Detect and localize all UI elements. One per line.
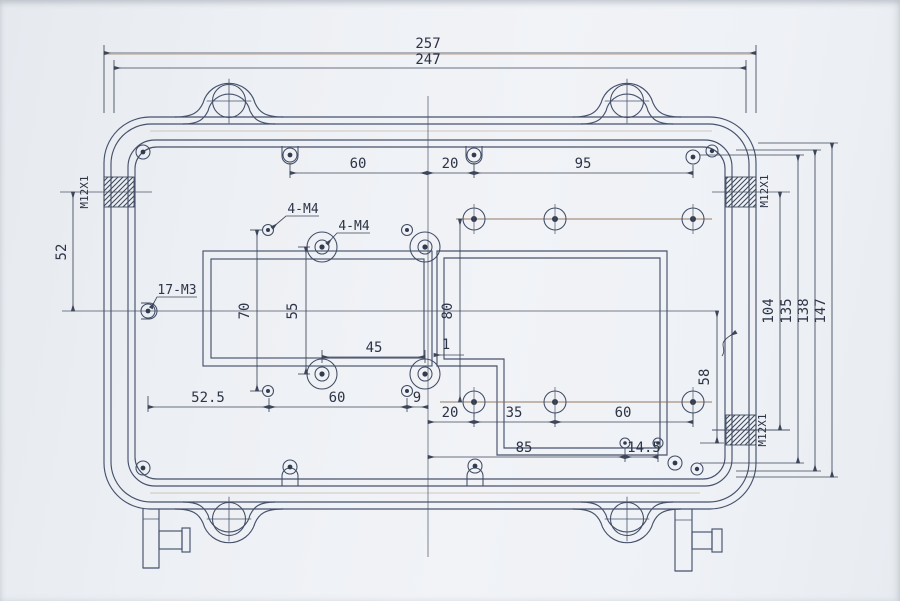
- dim-group-top: 257 247: [104, 36, 756, 113]
- dim-45: 45: [366, 340, 383, 356]
- dim-group-58: 58: [697, 311, 724, 443]
- dim-top-60: 60: [350, 156, 367, 172]
- label-gland-left: M12X1: [78, 175, 91, 208]
- label-4m4-a: 4-M4: [287, 202, 318, 217]
- dim-55: 55: [285, 303, 301, 320]
- dim-135: 135: [779, 298, 795, 323]
- leg-bottom-left: [143, 509, 190, 568]
- drawing-sheet: 257 247 60 20 95 52 70 55 45 1: [0, 0, 900, 601]
- perimeter-screws-17m3: [136, 145, 718, 486]
- plate-right-stepped: [437, 251, 667, 455]
- label-pattern-a: 4-M4: [272, 202, 319, 228]
- dim-low-60: 60: [615, 405, 632, 421]
- dim-138: 138: [796, 298, 812, 323]
- dim-147: 147: [813, 298, 829, 323]
- dim-top-20: 20: [442, 156, 459, 172]
- dim-low-20: 20: [442, 405, 459, 421]
- dim-group-80: 80: [440, 219, 460, 402]
- gland-top-right: [712, 177, 790, 207]
- label-gland-bottom-right: M12X1: [756, 413, 769, 446]
- enclosure-drawing: 257 247 60 20 95 52 70 55 45 1: [0, 0, 900, 601]
- dim-group-bottom2: 20 35 60: [428, 405, 693, 427]
- label-pattern-b: 4-M4: [327, 219, 370, 244]
- dim-104: 104: [761, 298, 777, 323]
- dim-inner-width: 247: [415, 52, 440, 68]
- dim-overall-width: 257: [415, 36, 440, 52]
- dim-58: 58: [697, 369, 713, 386]
- dim-group-bottom1: 52.5 60 9: [148, 390, 428, 412]
- label-perimeter-screws: 17-M3: [151, 283, 197, 308]
- boss: [307, 359, 337, 389]
- mounting-ear-bottom-left: [175, 497, 283, 543]
- mounting-ear-bottom-right: [573, 497, 681, 543]
- gland-left: [60, 177, 152, 207]
- dim-52: 52: [54, 244, 70, 261]
- dim-1: 1: [442, 337, 450, 353]
- dim-70: 70: [237, 303, 253, 320]
- dim-top-95: 95: [575, 156, 592, 172]
- dim-80: 80: [440, 303, 456, 320]
- dim-14-5: 14.5: [627, 440, 661, 456]
- dim-group-70-55: 70 55: [237, 230, 310, 391]
- dim-9: 9: [413, 390, 421, 406]
- label-4m4-b: 4-M4: [338, 219, 369, 234]
- label-gland-top-right: M12X1: [758, 174, 771, 207]
- dim-group-top-row: 60 20 95: [290, 156, 693, 178]
- boss: [307, 232, 337, 262]
- leg-bottom-right: [675, 509, 722, 571]
- dim-52-5: 52.5: [191, 390, 225, 406]
- hole-pattern-right: [440, 204, 712, 417]
- wall-leader-squiggle: [722, 332, 736, 356]
- boss: [410, 359, 440, 389]
- dim-85: 85: [516, 440, 533, 456]
- centerlines: [62, 96, 718, 557]
- dim-group-45-1: 45 1: [322, 337, 464, 363]
- label-17m3: 17-M3: [157, 283, 196, 298]
- dim-group-52: 52: [54, 192, 73, 311]
- dim-low-35: 35: [506, 405, 523, 421]
- boss: [410, 232, 440, 262]
- dim-mid-60: 60: [329, 390, 346, 406]
